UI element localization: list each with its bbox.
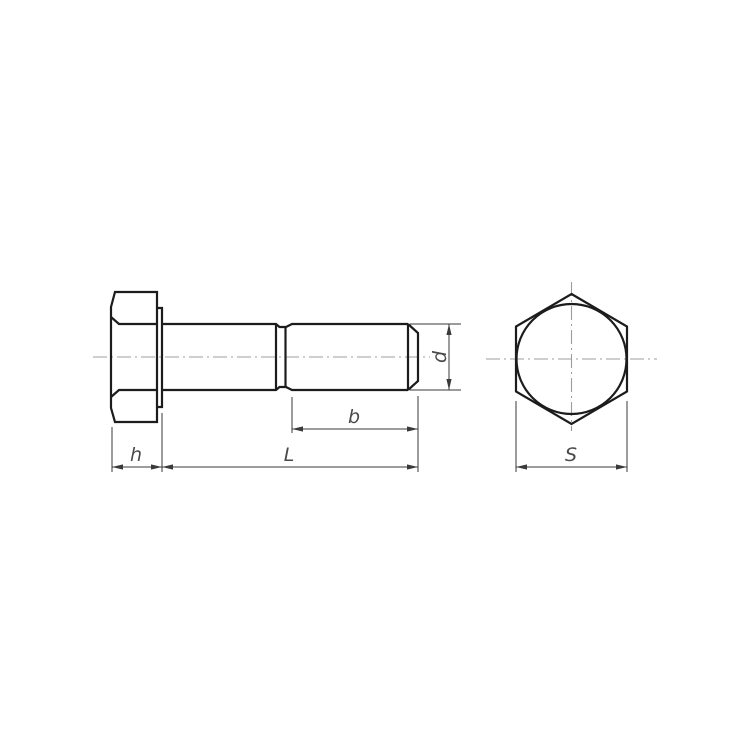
arrowhead-icon xyxy=(112,464,123,469)
shank-thread-top-edge xyxy=(162,324,408,327)
dimension-b: b xyxy=(292,397,418,433)
arrowhead-icon xyxy=(162,464,173,469)
end-view: S xyxy=(486,282,657,472)
side-view: h L b d xyxy=(93,292,461,472)
dimension-b-label: b xyxy=(348,406,360,428)
arrowhead-icon xyxy=(516,464,527,469)
arrowhead-icon xyxy=(446,379,451,390)
dimension-L-label: L xyxy=(284,444,295,466)
dimension-S-label: S xyxy=(565,444,577,466)
head-facet-line-top xyxy=(111,317,157,324)
dimension-L: L xyxy=(162,396,418,472)
arrowhead-icon xyxy=(446,324,451,335)
arrowhead-icon xyxy=(292,426,303,431)
hex-bolt-technical-drawing: h L b d xyxy=(0,0,750,750)
arrowhead-icon xyxy=(407,426,418,431)
dimension-h-label: h xyxy=(130,444,142,466)
arrowhead-icon xyxy=(616,464,627,469)
drawing-canvas: h L b d xyxy=(0,0,750,750)
dimension-d-label: d xyxy=(429,350,451,363)
head-facet-line-bottom xyxy=(111,390,157,397)
arrowhead-icon xyxy=(407,464,418,469)
arrowhead-icon xyxy=(151,464,162,469)
shank-thread-bottom-edge xyxy=(162,387,408,390)
